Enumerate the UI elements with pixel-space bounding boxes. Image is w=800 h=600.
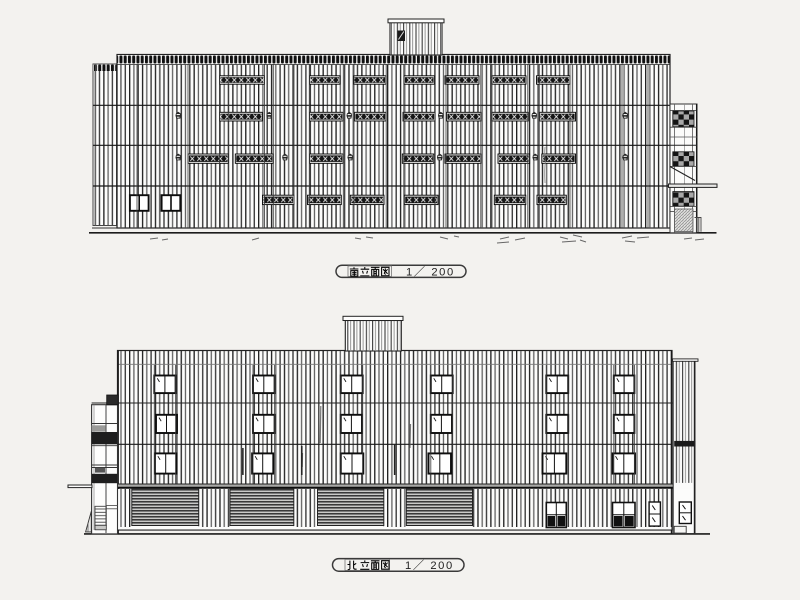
svg-text:1／ 200: 1／ 200 [406,266,455,279]
svg-text:1／ 200: 1／ 200 [405,559,454,572]
